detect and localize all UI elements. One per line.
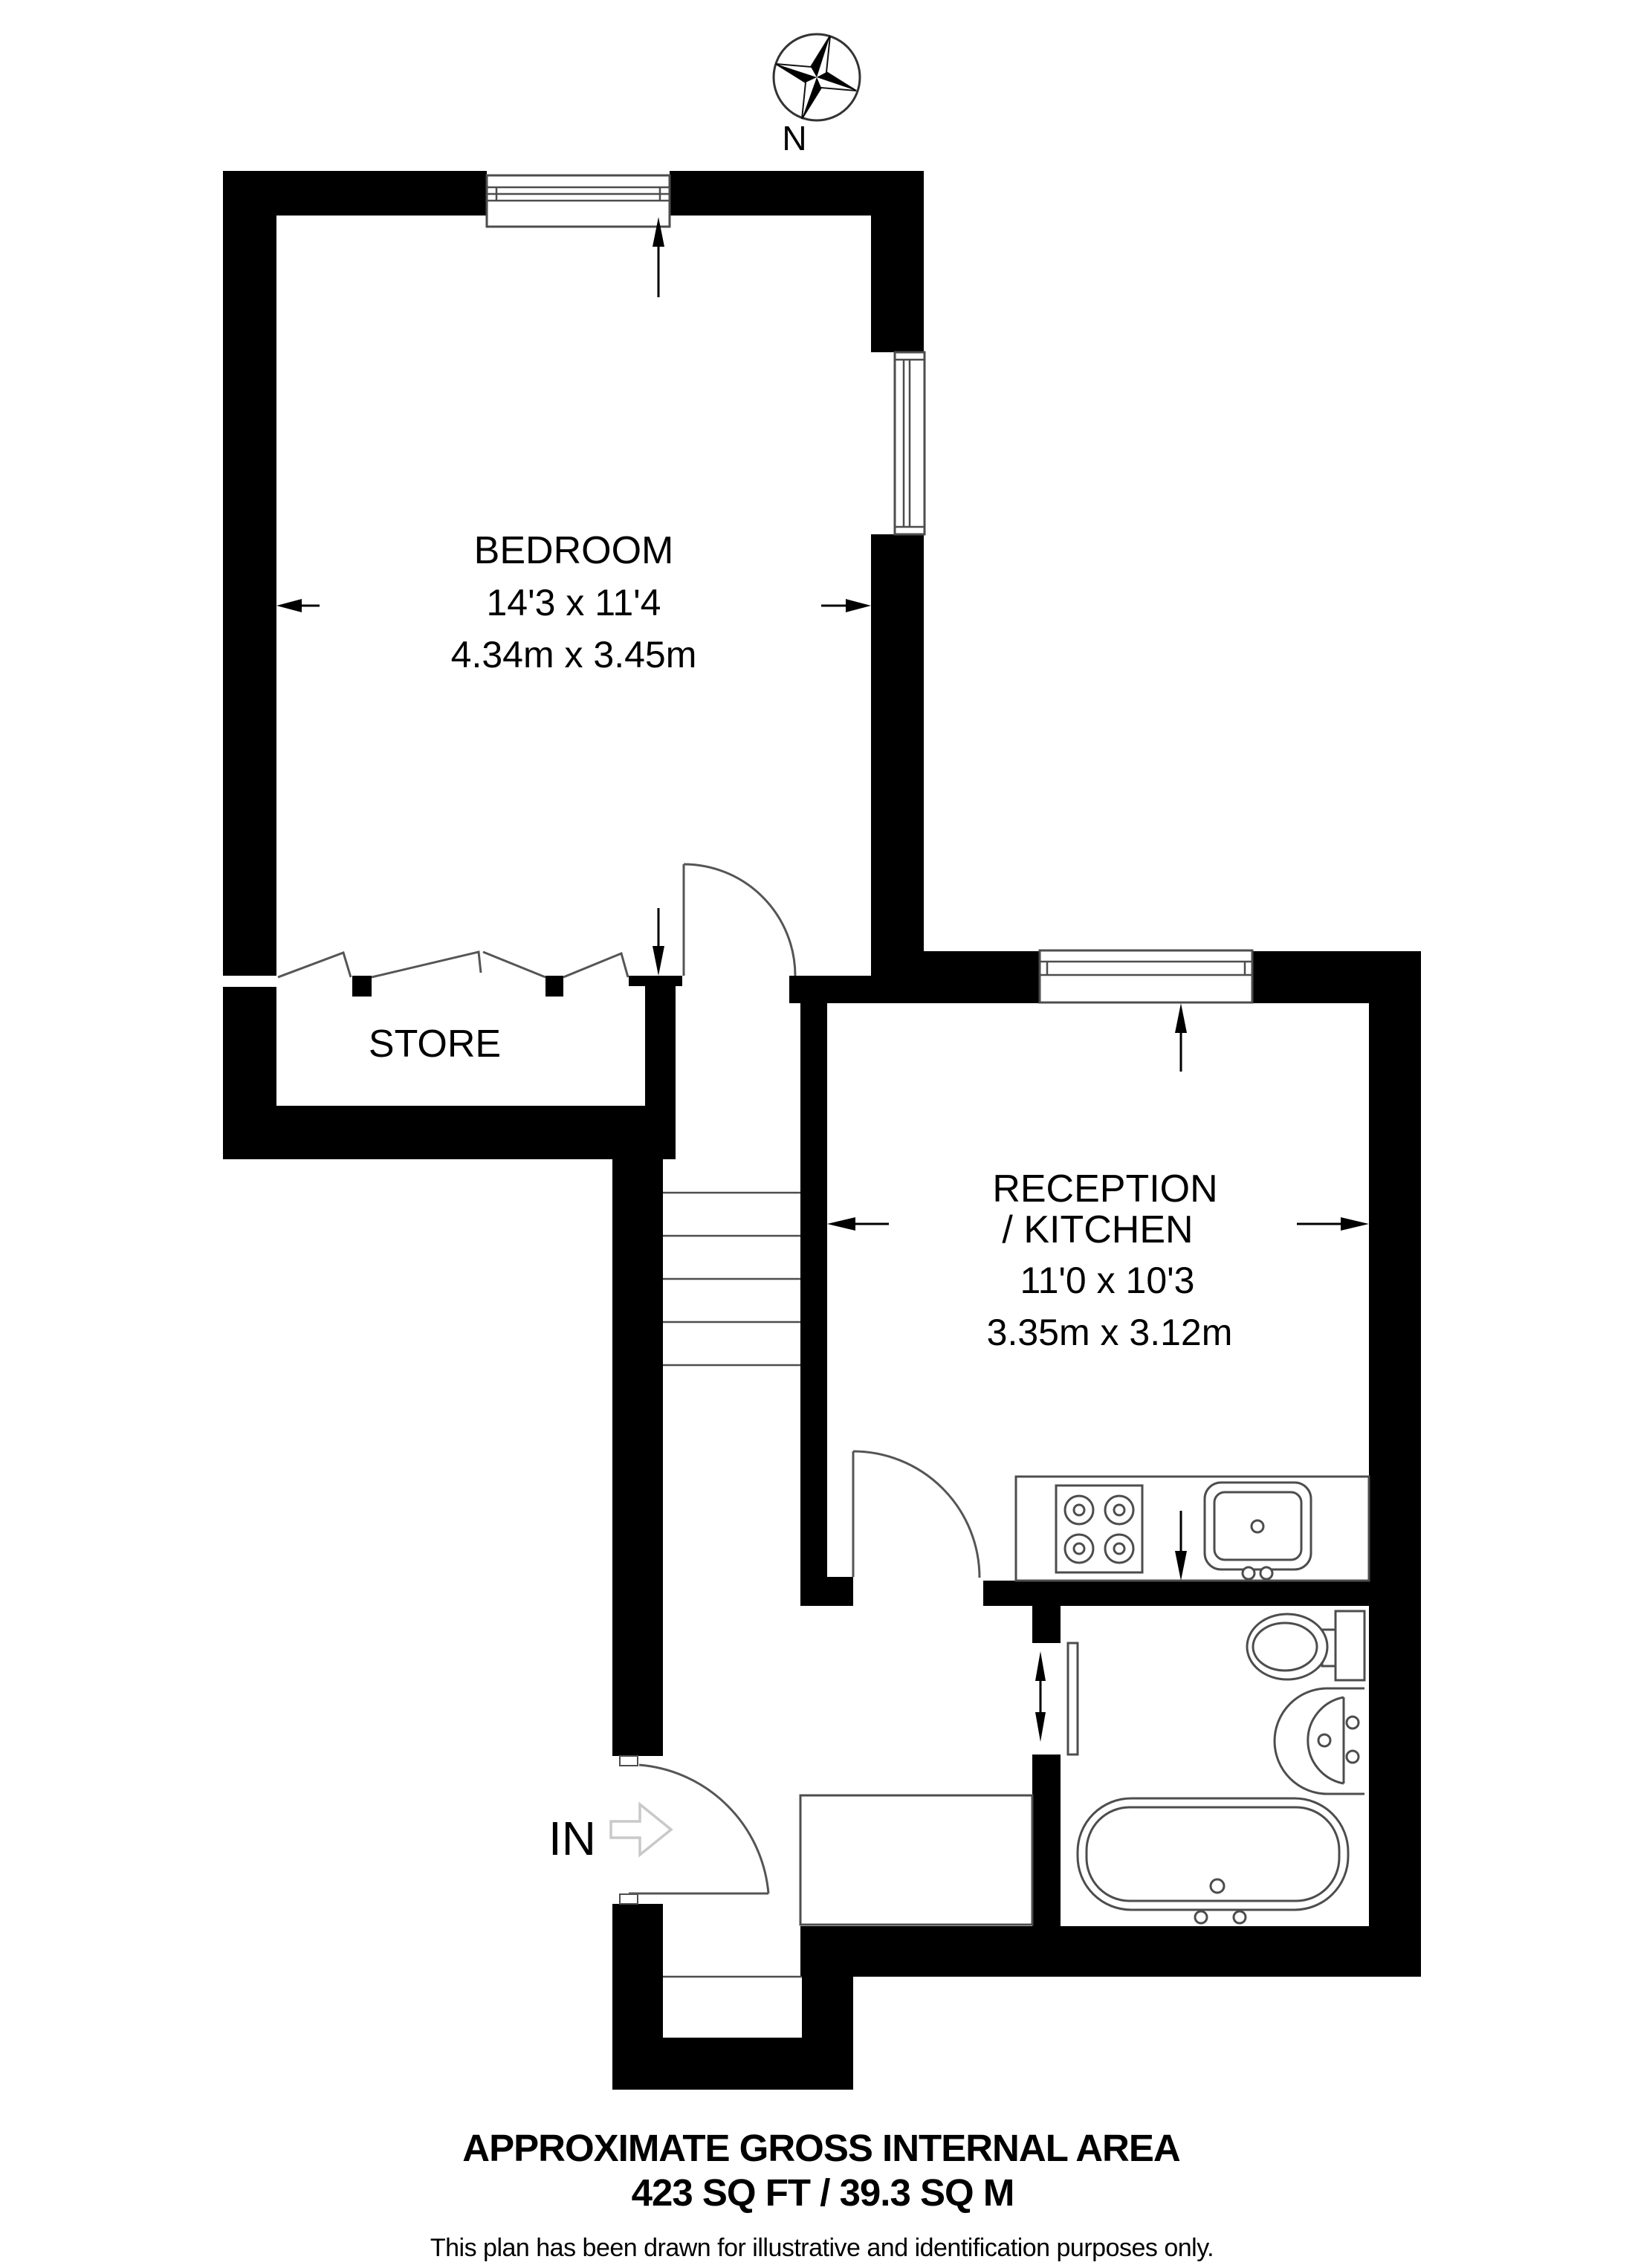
bedroom-top-window <box>487 175 670 227</box>
hob <box>1056 1485 1142 1572</box>
wall-bathroom-left-stub <box>1032 1606 1061 1643</box>
entry-door <box>629 1765 768 1893</box>
entry-door-jamb-bottom <box>620 1894 638 1904</box>
bathroom-fixtures <box>1078 1611 1364 1923</box>
wall-bedroom-top-right <box>670 171 924 216</box>
bedroom-depth-arrow-up <box>653 217 664 297</box>
bedroom-dims-metric: 4.34m x 3.45m <box>451 634 697 675</box>
footer-area: 423 SQ FT / 39.3 SQ M <box>632 2171 1014 2214</box>
bathtub <box>1078 1798 1348 1923</box>
basin <box>1275 1688 1364 1794</box>
bedroom-width-arrow-right <box>821 599 871 612</box>
footer-disclaimer: This plan has been drawn for illustrativ… <box>430 2234 1214 2262</box>
reception-label-line1: RECEPTION <box>992 1167 1217 1211</box>
wall-store-left <box>223 987 276 1106</box>
reception-width-arrow-right <box>1297 1217 1369 1231</box>
wall-reception-top-thin <box>789 976 871 1003</box>
store-label: STORE <box>369 1023 501 1066</box>
wall-bedroom-top-left <box>223 171 487 216</box>
wall-corridor-corner <box>800 1577 853 1606</box>
wall-bathroom-left <box>1032 1755 1061 1926</box>
floor-plan: N BEDROOM 14'3 x 11'4 4.34m x 3.45m STOR… <box>0 0 1635 2268</box>
wall-bedroom-right-upper <box>871 216 924 352</box>
reception-dims-metric: 3.35m x 3.12m <box>987 1312 1233 1353</box>
compass-north-label: N <box>782 119 806 158</box>
hall-cupboard <box>800 1795 1032 1925</box>
bedroom-width-arrow-left <box>276 599 320 612</box>
entrance-label: IN <box>548 1812 596 1865</box>
entry-arrow-icon <box>611 1804 671 1855</box>
wall-door-stub <box>629 976 682 986</box>
bedroom-label: BEDROOM <box>474 529 674 572</box>
bedroom-door <box>684 864 795 976</box>
wall-store-right <box>645 976 676 1106</box>
wall-corridor-right <box>800 1003 827 1577</box>
reception-label-line2: / KITCHEN <box>1002 1208 1193 1251</box>
wall-store-bottom <box>223 1106 676 1159</box>
reception-depth-arrow-up <box>1175 1003 1187 1072</box>
wall-corridor-lower-right <box>802 1977 853 2038</box>
reception-door <box>853 1451 980 1578</box>
sliding-door-arrow <box>1035 1651 1046 1742</box>
wall-hall-left-lower <box>612 1904 663 2038</box>
wall-reception-top-left <box>871 951 1040 1003</box>
store-bifold-doors <box>278 952 628 977</box>
wall-hall-bottom-block <box>612 2038 853 2090</box>
wall-reception-top-right <box>1252 951 1421 1003</box>
floor-plan-page: N BEDROOM 14'3 x 11'4 4.34m x 3.45m STOR… <box>0 0 1635 2268</box>
wall-reception-bottom <box>983 1581 1369 1606</box>
wall-bifold-stub-2 <box>545 976 563 997</box>
wall-bedroom-right-lower <box>871 534 924 951</box>
doors <box>278 864 1078 1893</box>
entry-door-jamb-top <box>620 1756 638 1766</box>
wall-bifold-stub-1 <box>352 976 372 997</box>
kitchen-sink <box>1205 1483 1311 1579</box>
wall-hall-left-upper <box>612 1159 663 1756</box>
toilet <box>1247 1611 1364 1680</box>
bedroom-side-window <box>895 352 925 534</box>
wall-right-outer <box>1369 1003 1421 1926</box>
wall-bedroom-left <box>223 216 276 976</box>
staircase <box>663 1193 802 1977</box>
kitchen-fixtures <box>1016 1477 1369 1581</box>
bedroom-dims-imperial: 14'3 x 11'4 <box>486 582 661 623</box>
bathroom-sliding-door <box>1068 1643 1078 1755</box>
reception-width-arrow-left <box>827 1217 889 1231</box>
reception-dims-imperial: 11'0 x 10'3 <box>1020 1260 1194 1301</box>
bedroom-depth-arrow-down <box>653 908 664 976</box>
door-jambs <box>620 1756 638 1904</box>
reception-window <box>1040 950 1252 1002</box>
wall-bathroom-bottom <box>800 1926 1421 1977</box>
compass-icon: N <box>774 34 860 158</box>
footer-title: APPROXIMATE GROSS INTERNAL AREA <box>462 2127 1180 2169</box>
